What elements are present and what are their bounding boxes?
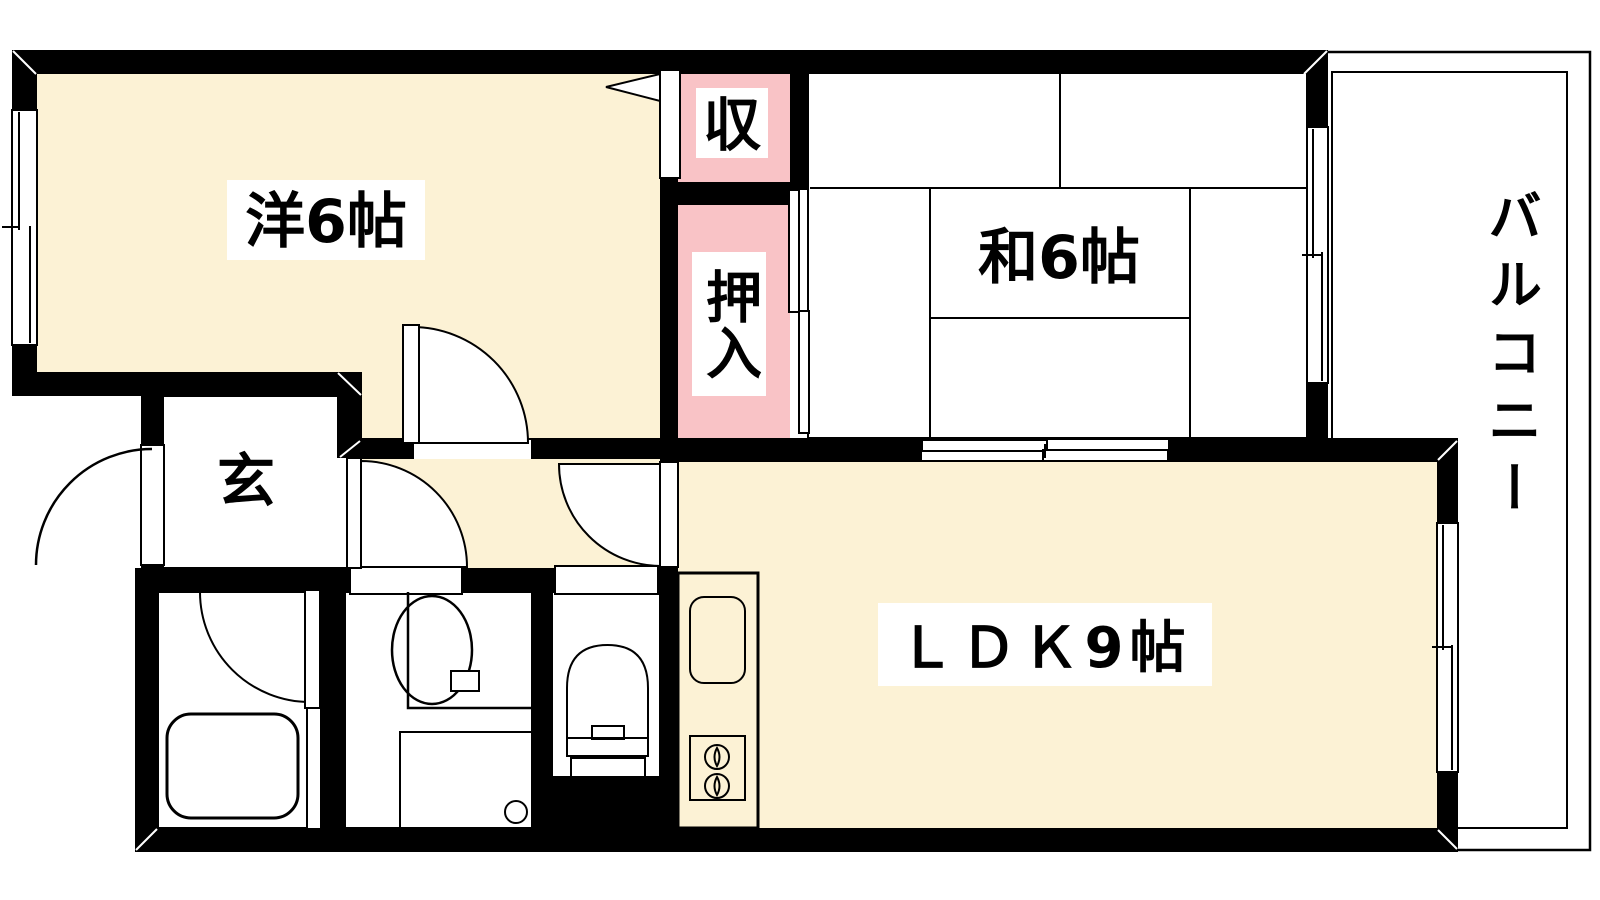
closet-label: 押入 xyxy=(697,268,762,380)
toilet-bowl xyxy=(567,645,648,738)
closet-sliding-door xyxy=(789,190,809,433)
sliding-leaf xyxy=(1043,450,1168,461)
fusuma-leaf xyxy=(789,190,799,312)
washroom-floor xyxy=(345,592,532,828)
door-leaf xyxy=(660,462,678,567)
door-leaf xyxy=(305,590,320,708)
wall-storage-east xyxy=(790,70,808,190)
japanese-room-label: 和6帖 xyxy=(978,223,1140,293)
sliding-leaf xyxy=(922,440,1047,451)
doorway-opening xyxy=(555,566,658,594)
bathroom-door xyxy=(200,590,320,708)
toilet-fixture xyxy=(567,645,648,777)
wall-western-room-south xyxy=(12,372,362,396)
wall-japanese-east-lower xyxy=(1307,383,1328,440)
washing-machine-pan xyxy=(400,732,532,828)
toilet-base xyxy=(571,758,645,777)
floorplan-svg: 洋6帖 和6帖 ＬＤＫ9帖 収 押入 玄 バルコニー xyxy=(0,0,1600,900)
western-room-label: 洋6帖 xyxy=(245,187,407,257)
toilet-floor xyxy=(552,592,660,777)
window-east-japanese xyxy=(1302,127,1328,383)
bathtub xyxy=(167,714,298,818)
door-leaf xyxy=(141,445,164,565)
fusuma-leaf xyxy=(799,311,809,433)
japanese-room-sliding-door xyxy=(922,440,1168,461)
toilet-tank xyxy=(567,738,648,756)
storage-door-opening xyxy=(660,70,680,178)
wall-bottom xyxy=(135,828,1458,852)
door-swing-arc xyxy=(36,449,152,565)
floorplan-canvas: 洋6帖 和6帖 ＬＤＫ9帖 収 押入 玄 バルコニー xyxy=(0,0,1600,900)
door-swing xyxy=(200,592,310,702)
wall-west-lower xyxy=(135,568,158,852)
door-leaf xyxy=(403,325,419,443)
balcony-label: バルコニー xyxy=(1479,188,1542,528)
ldk-label: ＬＤＫ9帖 xyxy=(899,616,1192,681)
window-west xyxy=(2,110,37,345)
doorway-opening xyxy=(350,566,462,594)
basin-faucet xyxy=(451,671,479,691)
door-leaf xyxy=(347,458,361,568)
entrance-label: 玄 xyxy=(217,447,275,515)
wall-storage-closet-divider xyxy=(678,182,790,205)
entrance-door xyxy=(36,445,164,565)
drain-circle xyxy=(505,801,527,823)
wall-bath-washroom xyxy=(320,592,345,828)
storage-label: 収 xyxy=(703,91,761,159)
